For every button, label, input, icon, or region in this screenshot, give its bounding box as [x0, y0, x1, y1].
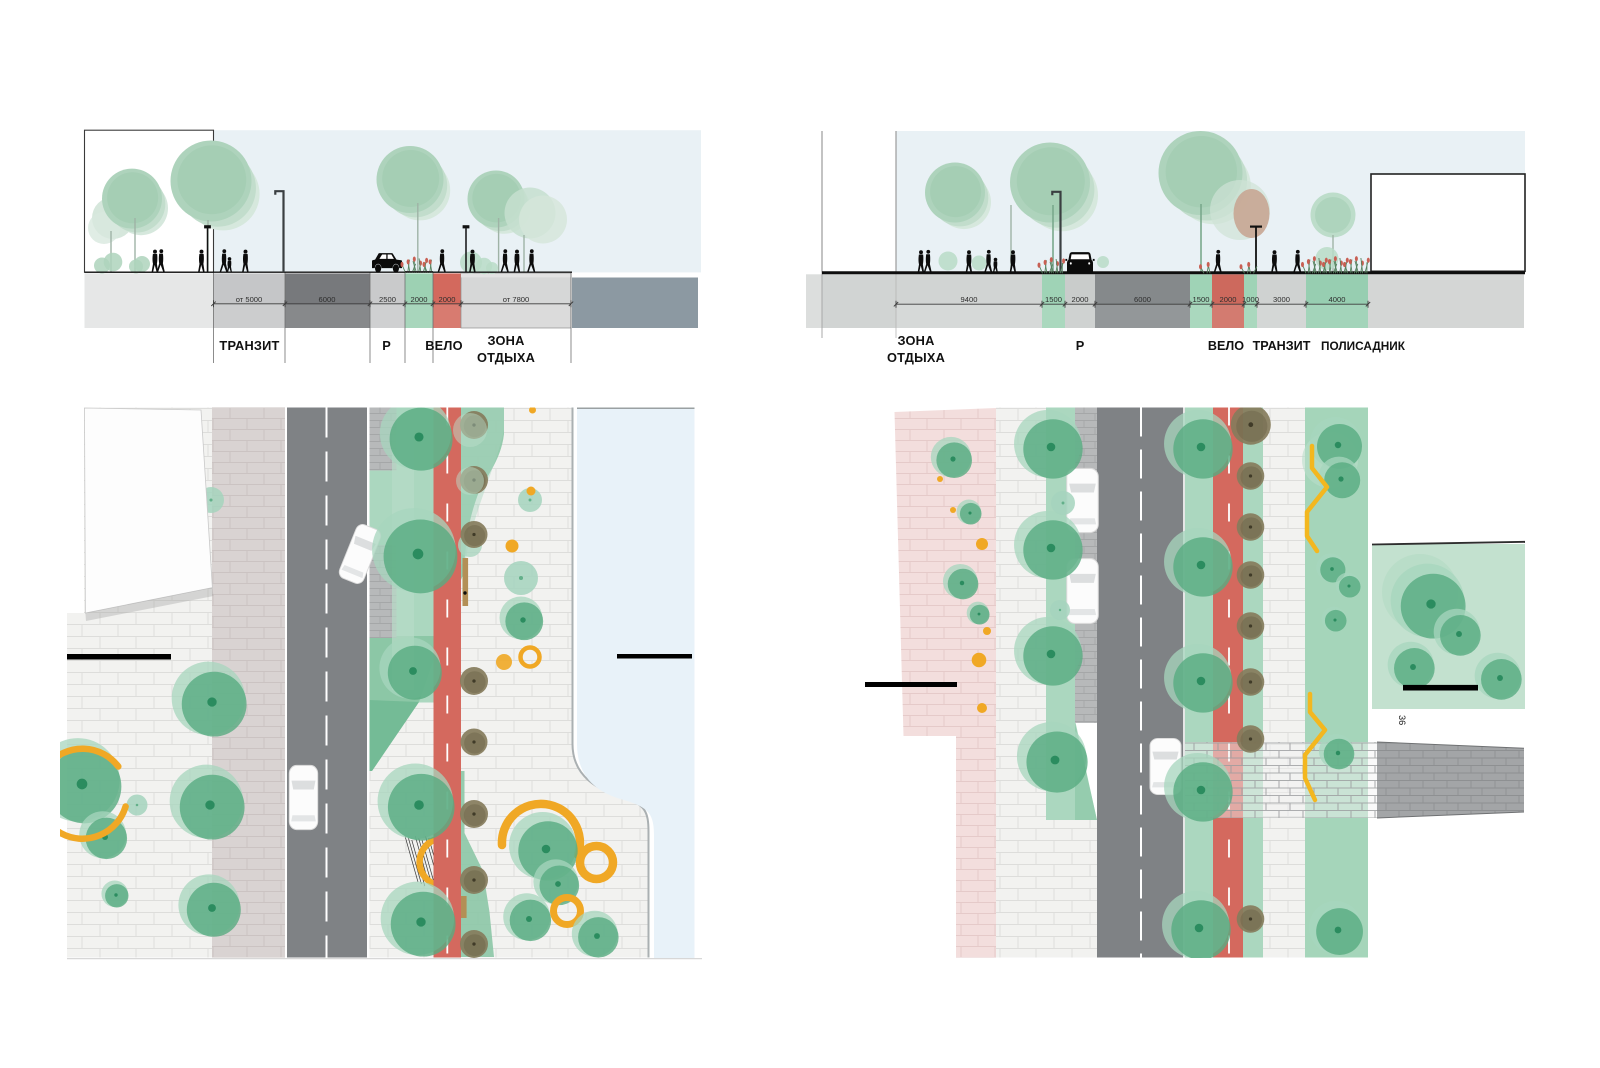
- svg-text:1000: 1000: [1242, 295, 1259, 304]
- svg-text:ТРАНЗИТ: ТРАНЗИТ: [219, 338, 279, 353]
- svg-text:1500: 1500: [1193, 295, 1210, 304]
- svg-text:9400: 9400: [961, 295, 978, 304]
- svg-text:ЗОНА: ЗОНА: [487, 333, 524, 348]
- svg-text:4000: 4000: [1329, 295, 1346, 304]
- svg-text:от 7800: от 7800: [503, 295, 530, 304]
- svg-text:Р: Р: [1076, 338, 1085, 353]
- svg-text:ОТДЫХА: ОТДЫХА: [477, 350, 535, 365]
- svg-text:1500: 1500: [1045, 295, 1062, 304]
- svg-text:36: 36: [1397, 715, 1407, 725]
- svg-text:2000: 2000: [1072, 295, 1089, 304]
- svg-text:Р: Р: [382, 338, 391, 353]
- svg-text:2000: 2000: [439, 295, 456, 304]
- svg-text:ОТДЫХА: ОТДЫХА: [887, 350, 945, 365]
- svg-text:от 5000: от 5000: [236, 295, 263, 304]
- svg-text:ЗОНА: ЗОНА: [897, 333, 934, 348]
- svg-text:ВЕЛО: ВЕЛО: [425, 338, 463, 353]
- svg-text:2000: 2000: [411, 295, 428, 304]
- svg-text:ТРАНЗИТ: ТРАНЗИТ: [1253, 339, 1311, 353]
- svg-text:2000: 2000: [1220, 295, 1237, 304]
- svg-text:3000: 3000: [1273, 295, 1290, 304]
- svg-text:ПОЛИСАДНИК: ПОЛИСАДНИК: [1321, 339, 1406, 353]
- svg-text:6000: 6000: [1134, 295, 1151, 304]
- svg-text:6000: 6000: [319, 295, 336, 304]
- svg-text:2500: 2500: [379, 295, 396, 304]
- svg-text:ВЕЛО: ВЕЛО: [1208, 339, 1244, 353]
